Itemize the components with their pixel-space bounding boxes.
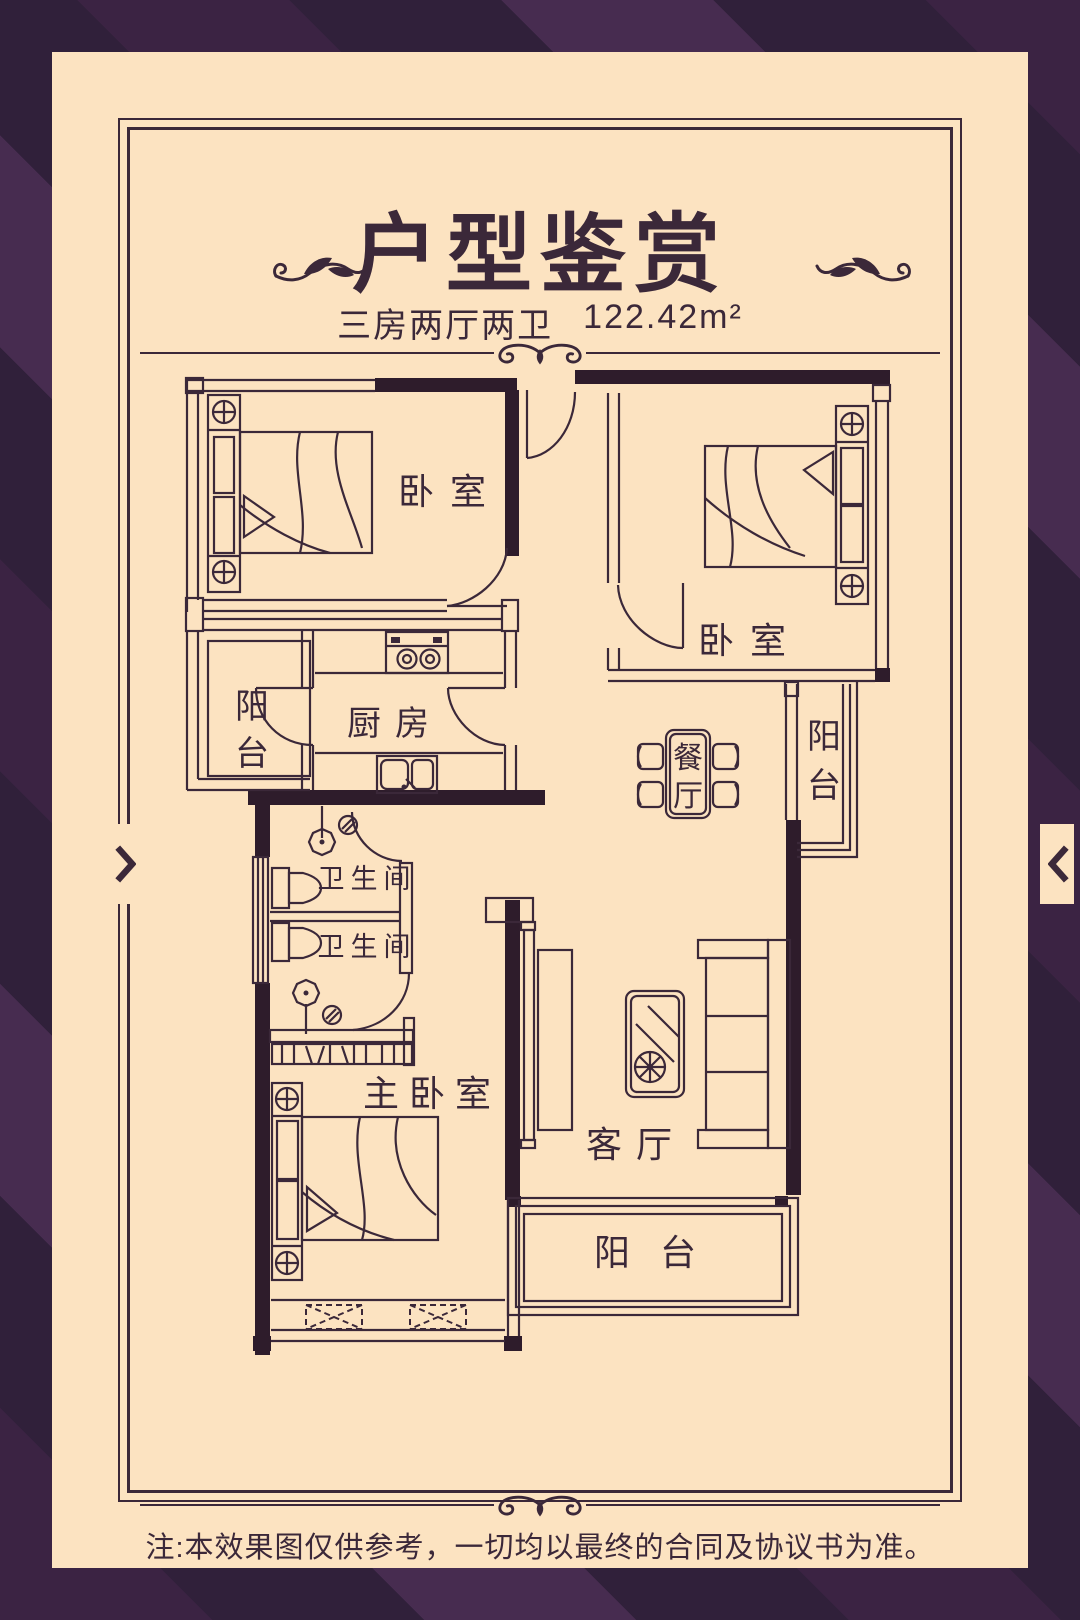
- bed: [705, 406, 868, 604]
- toilet: [272, 923, 321, 961]
- disclaimer-note: 注:本效果图仅供参考，一切均以最终的合同及协议书为准。: [52, 1524, 1028, 1566]
- room-label-bathroom-upper: 卫生间: [318, 864, 417, 894]
- room-label-balcony-left: 阳: [235, 689, 269, 726]
- room-label-kitchen: 厨房: [347, 705, 443, 743]
- divider-bottom: [140, 1492, 940, 1518]
- room-label-balcony-right: 台: [807, 767, 841, 805]
- floorplan-svg: 卧室: [150, 340, 940, 1370]
- tv-cabinet: [521, 922, 572, 1148]
- chevron-right-icon[interactable]: [114, 844, 136, 884]
- balcony-left: 阳 台: [187, 619, 502, 790]
- room-label-bathroom-lower: 卫生间: [318, 932, 417, 962]
- kitchen: 厨房: [315, 630, 516, 793]
- flourish-icon: [814, 246, 912, 292]
- room-label-living-room: 客厅: [586, 1125, 686, 1165]
- master-bedroom: 主卧室: [271, 1074, 519, 1341]
- poster-page: 户型鉴赏 三房两厅两卫 122.42m²: [0, 0, 1080, 1620]
- wardrobe: [306, 1305, 466, 1329]
- dining-room: 餐 厅: [638, 730, 738, 818]
- room-label-balcony-left: 台: [235, 735, 269, 773]
- bedroom-b: 卧室: [608, 385, 890, 681]
- room-label-balcony-right: 阳: [807, 719, 841, 756]
- room-label-master-bedroom: 主卧室: [363, 1074, 501, 1114]
- scroll-ornament-icon: [492, 1492, 588, 1518]
- living-room: 客厅: [521, 922, 790, 1165]
- entry-door: [527, 390, 575, 458]
- shower-head: [293, 980, 319, 1034]
- walls-thick: [248, 370, 890, 1355]
- vanity-counter: [270, 1018, 414, 1065]
- bathrooms: 卫生间 卫生间: [253, 806, 533, 1065]
- coffee-table: [626, 991, 684, 1097]
- toilet: [272, 868, 321, 908]
- shower-head: [309, 806, 335, 855]
- sofa: [698, 940, 790, 1148]
- room-label-balcony-bottom: 阳台: [594, 1233, 726, 1273]
- room-label-bedroom-a: 卧室: [398, 472, 502, 512]
- bed: [208, 395, 372, 592]
- sink: [377, 756, 437, 793]
- balcony-bottom: 阳台: [508, 1198, 798, 1315]
- flourish-icon: [272, 246, 370, 292]
- room-label-dining: 厅: [673, 780, 703, 813]
- room-label-dining: 餐: [673, 742, 703, 775]
- floor-drain: [323, 1006, 341, 1024]
- bedroom-a: 卧室: [186, 378, 518, 631]
- room-label-bedroom-b: 卧室: [698, 621, 802, 661]
- stove: [386, 632, 448, 673]
- chevron-left-icon[interactable]: [1048, 844, 1070, 884]
